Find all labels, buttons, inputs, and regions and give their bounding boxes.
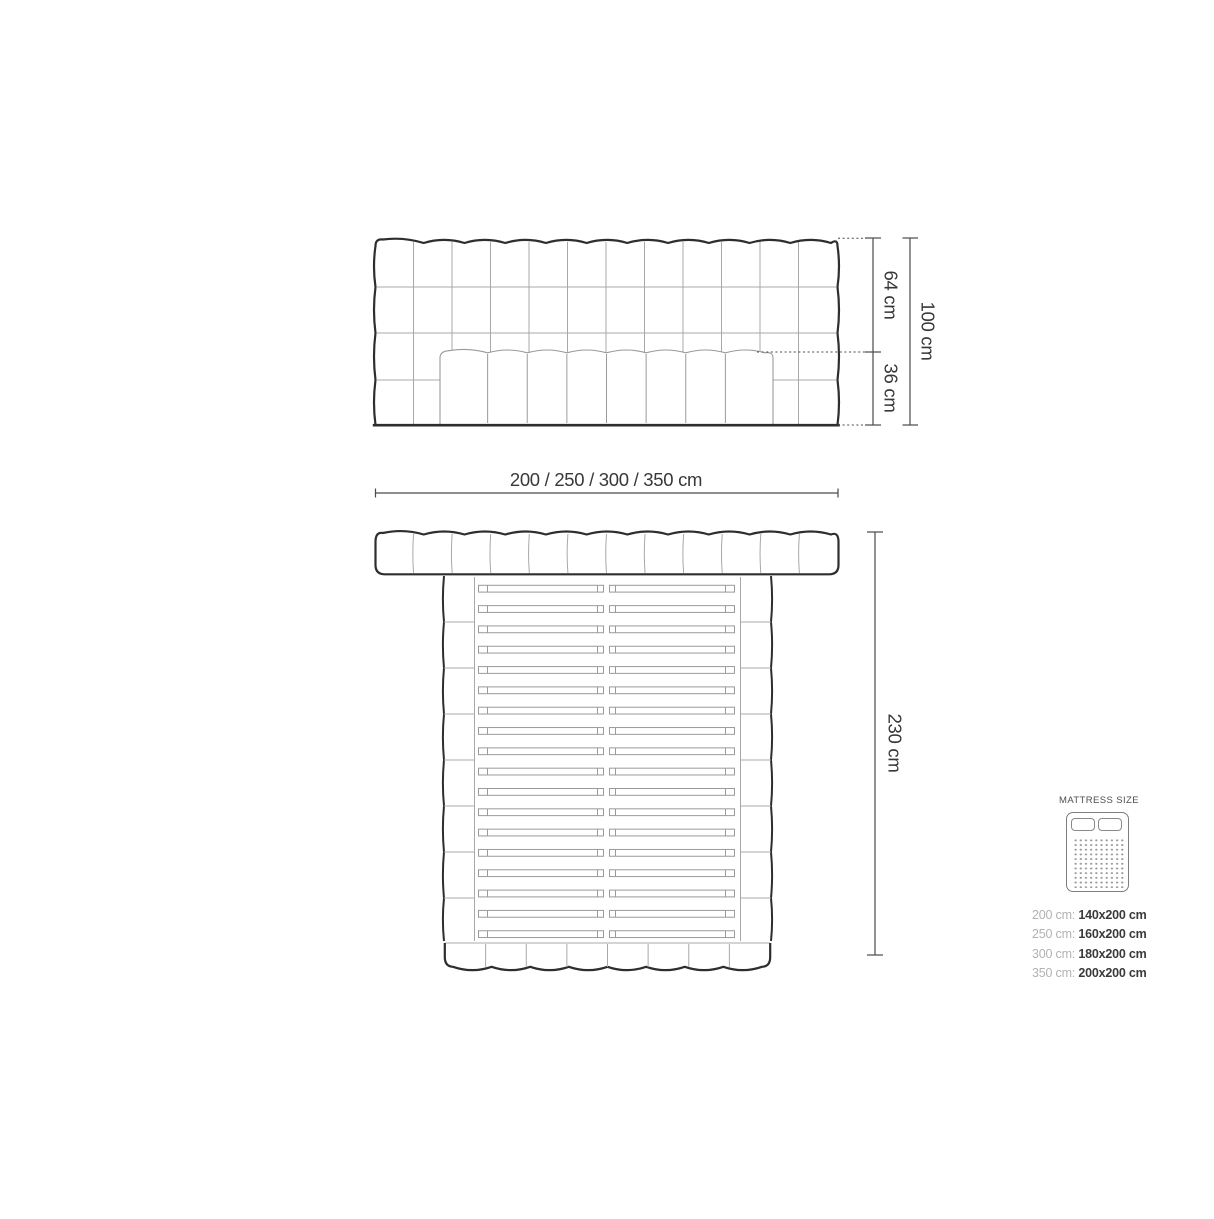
dim-label-headboard-lower-height: 36 cm: [881, 364, 902, 413]
width-dimension: 200 / 250 / 300 / 350 cm: [376, 469, 839, 498]
slat-left: [479, 646, 604, 653]
slat-right: [610, 667, 735, 674]
bed-dimension-diagram: 64 cm 36 cm 100 cm 200 / 250 / 300 / 350…: [0, 0, 1214, 1214]
mattress-size-value: 180x200 cm: [1078, 947, 1146, 961]
frame-size-label: 250 cm:: [1032, 927, 1075, 941]
top-view-drawing: 230 cm: [376, 531, 906, 970]
slat-right: [610, 585, 735, 592]
mattress-size-row: 300 cm: 180x200 cm: [1032, 945, 1134, 964]
slat-right: [610, 910, 735, 917]
slat-right: [610, 890, 735, 897]
headboard-strip-divider: [644, 534, 645, 573]
headboard-strip-divider: [490, 534, 491, 573]
slat-right: [610, 931, 735, 938]
front-view-drawing: 64 cm 36 cm 100 cm: [373, 238, 939, 425]
slat-right: [610, 768, 735, 775]
top-view-geometry: [376, 531, 884, 970]
slat-right: [610, 606, 735, 613]
frame-size-label: 350 cm:: [1032, 966, 1075, 980]
slat-left: [479, 809, 604, 816]
right-rail-outer-edge: [771, 576, 772, 941]
mattress-icon: [1066, 812, 1129, 892]
dim-label-headboard-upper-height: 64 cm: [881, 271, 902, 320]
slat-right: [610, 646, 735, 653]
slat-left: [479, 890, 604, 897]
headboard-strip-divider: [760, 534, 761, 573]
slat-right: [610, 728, 735, 735]
dim-label-headboard-total-height: 100 cm: [918, 302, 939, 361]
mattress-size-row: 250 cm: 160x200 cm: [1032, 925, 1134, 944]
headboard-strip-divider: [799, 534, 800, 573]
headboard-strip-divider: [606, 534, 607, 573]
slat-right: [610, 626, 735, 633]
slat-left: [479, 768, 604, 775]
slat-right: [610, 870, 735, 877]
pillow-icon: [1098, 818, 1122, 831]
mattress-dots-pattern: [1072, 837, 1124, 888]
headboard-strip-divider: [567, 534, 568, 573]
slat-left: [479, 849, 604, 856]
slat-left: [479, 931, 604, 938]
mattress-size-value: 160x200 cm: [1078, 927, 1146, 941]
pillow-icon: [1071, 818, 1095, 831]
frame-size-label: 300 cm:: [1032, 947, 1075, 961]
slat-left: [479, 829, 604, 836]
product-dimension-sheet: { "front_view": { "height_upper_label": …: [0, 0, 1214, 1214]
slat-left: [479, 667, 604, 674]
headboard-strip-divider: [413, 534, 414, 573]
legend-title: MATTRESS SIZE: [1059, 795, 1139, 806]
mattress-size-value: 200x200 cm: [1078, 966, 1146, 980]
slat-left: [479, 687, 604, 694]
slat-left: [479, 707, 604, 714]
slat-left: [479, 728, 604, 735]
mattress-size-row: 200 cm: 140x200 cm: [1032, 906, 1134, 925]
slat-left: [479, 626, 604, 633]
slat-left: [479, 789, 604, 796]
slat-right: [610, 789, 735, 796]
headboard-strip-divider: [683, 534, 684, 573]
slat-left: [479, 870, 604, 877]
slat-left: [479, 748, 604, 755]
headboard-strip-divider: [451, 534, 452, 573]
slat-right: [610, 748, 735, 755]
mattress-size-row: 350 cm: 200x200 cm: [1032, 964, 1134, 983]
headboard-strip-outline: [376, 531, 839, 574]
mattress-size-list: 200 cm: 140x200 cm 250 cm: 160x200 cm 30…: [1032, 906, 1134, 983]
dim-label-bed-widths: 200 / 250 / 300 / 350 cm: [510, 469, 702, 490]
slat-right: [610, 687, 735, 694]
frame-size-label: 200 cm:: [1032, 908, 1075, 922]
slat-left: [479, 606, 604, 613]
mattress-size-value: 140x200 cm: [1078, 908, 1146, 922]
headboard-strip-divider: [529, 534, 530, 573]
left-rail-outer-edge: [443, 576, 444, 941]
slat-right: [610, 849, 735, 856]
slat-left: [479, 910, 604, 917]
headboard-strip-divider: [721, 534, 722, 573]
dim-label-bed-depth: 230 cm: [885, 714, 906, 773]
slat-right: [610, 707, 735, 714]
slat-left: [479, 585, 604, 592]
slat-right: [610, 809, 735, 816]
front-view-geometry: [373, 238, 918, 425]
slat-right: [610, 829, 735, 836]
